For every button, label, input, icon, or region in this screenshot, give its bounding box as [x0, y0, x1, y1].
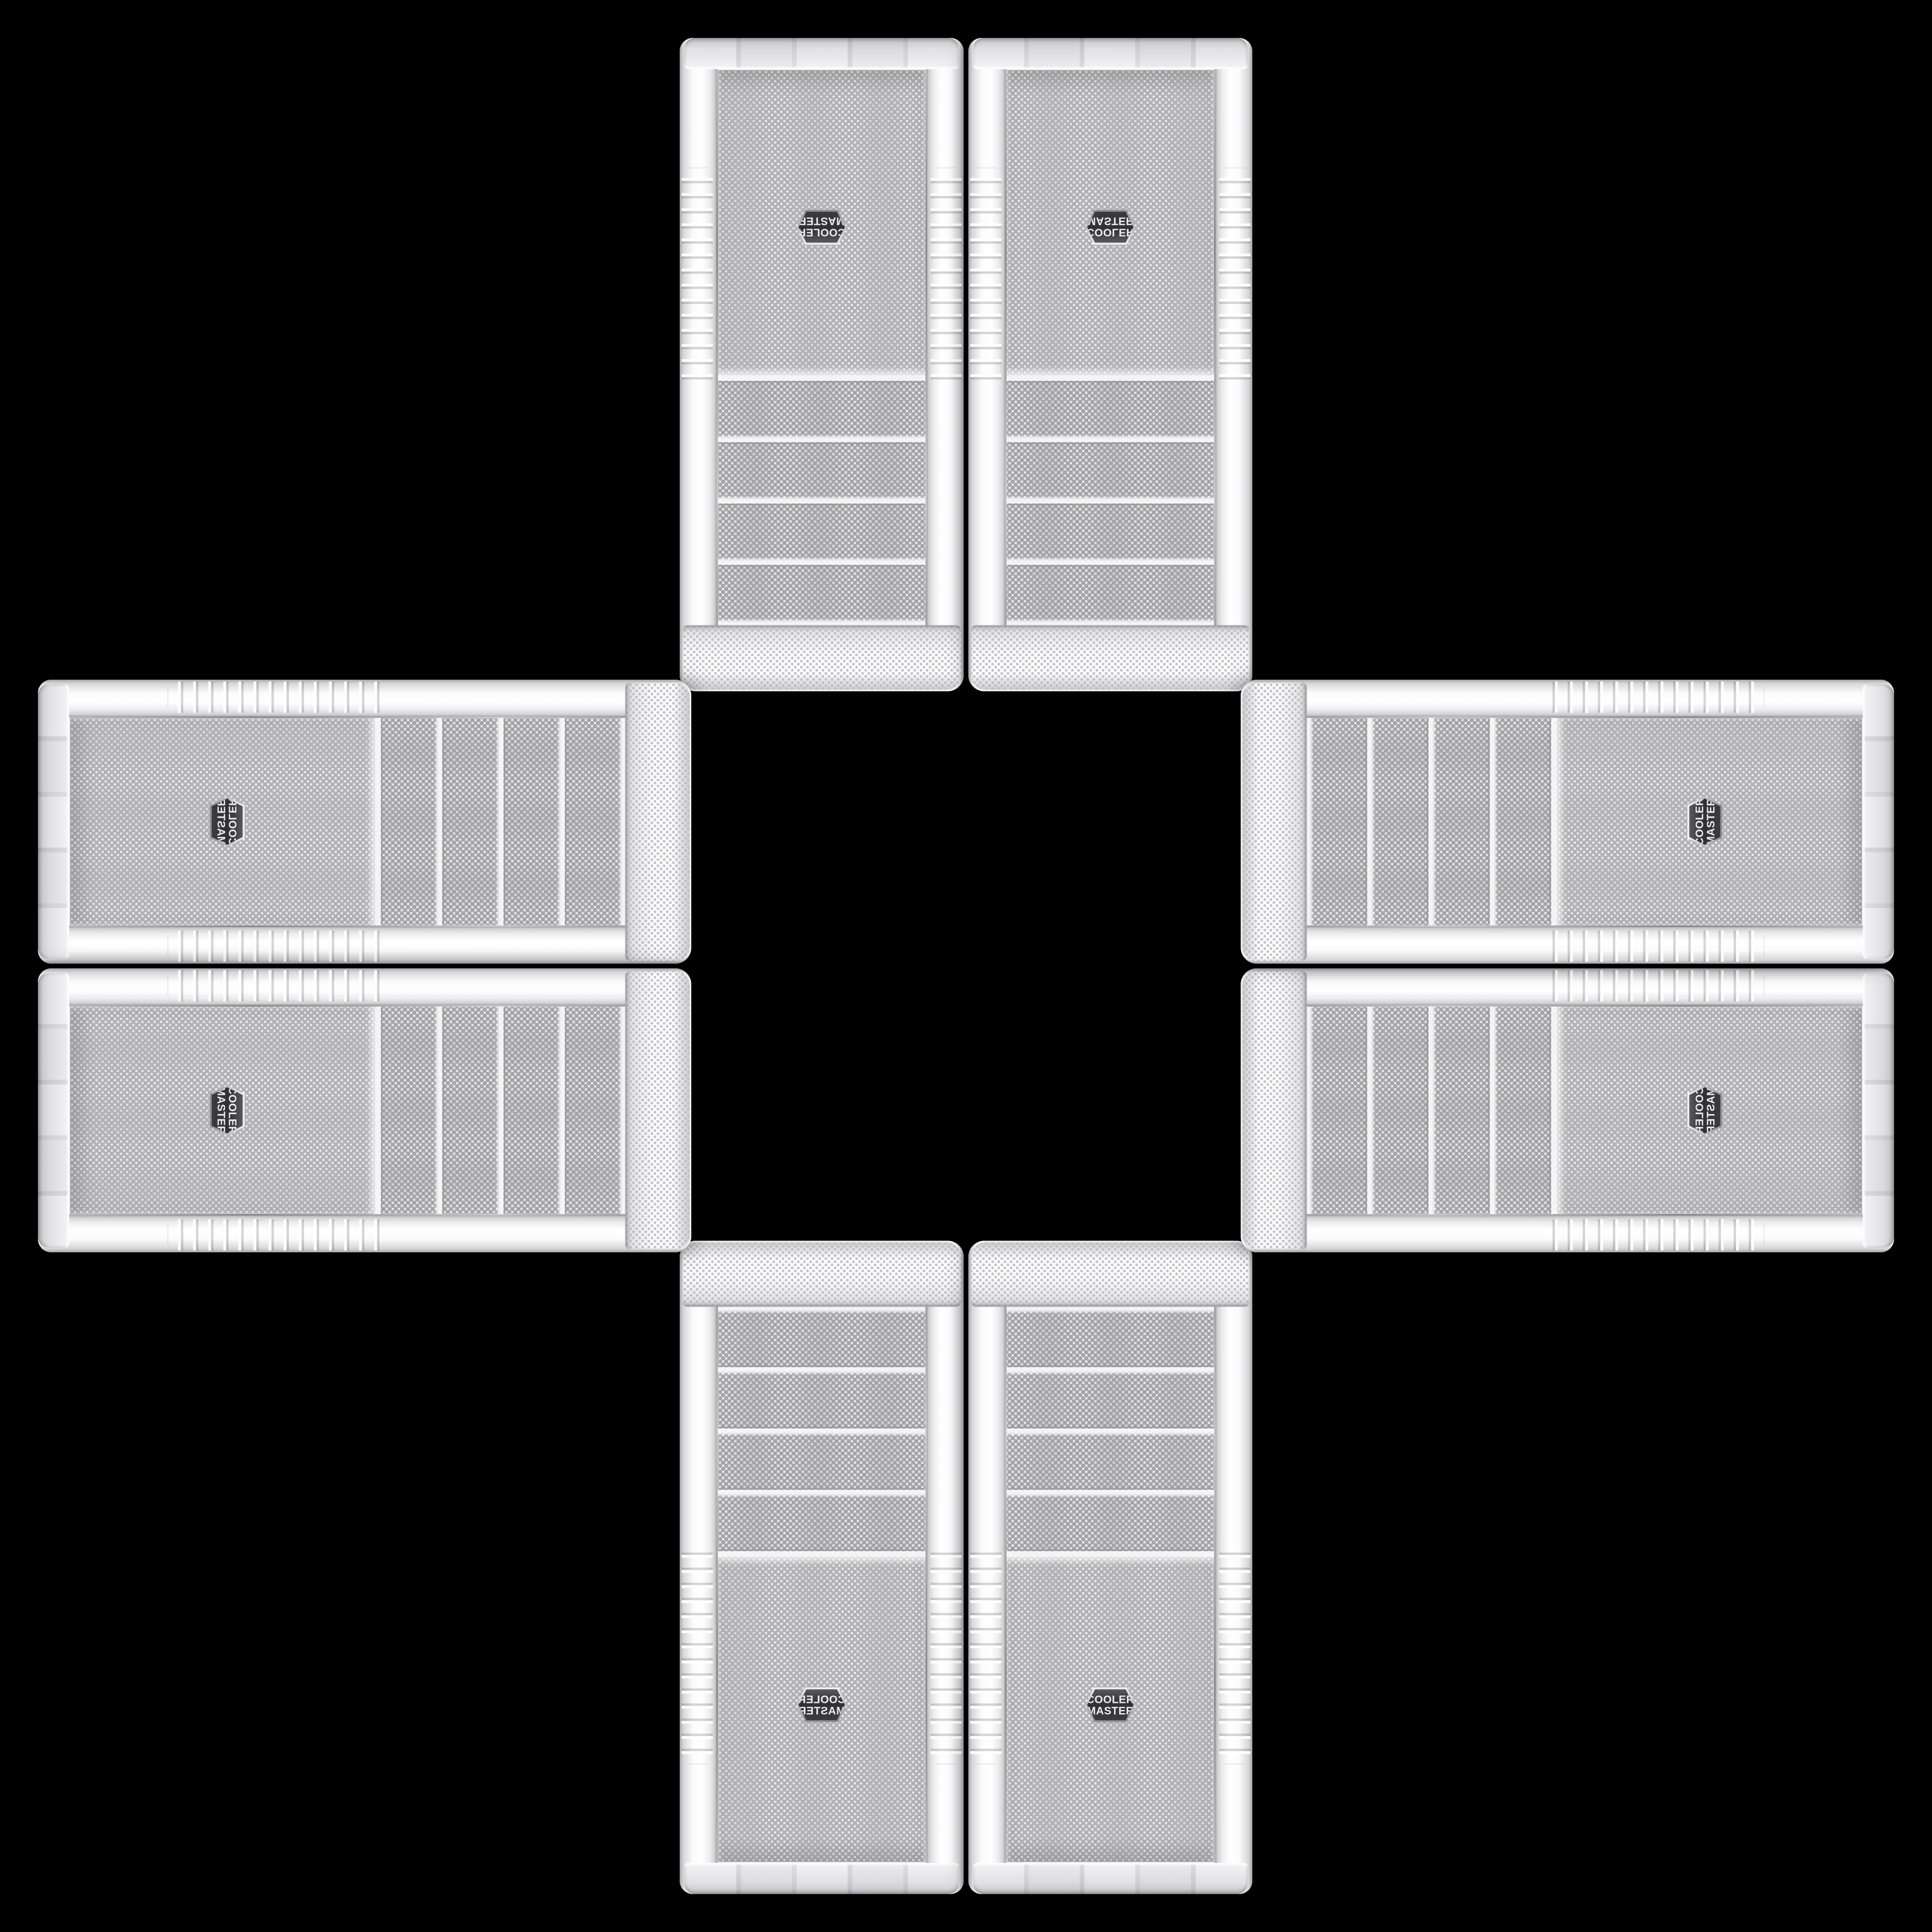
pair-right: COOLER MASTER — [1241, 680, 1894, 1252]
chrome-trim-left — [67, 925, 679, 927]
case-side-rail-right — [1215, 1241, 1252, 1894]
drive-bay-cover — [1494, 1007, 1551, 1214]
case-bottom-cap — [1863, 973, 1894, 1248]
case-top-cap — [625, 683, 691, 961]
fan-mesh-panel: COOLER MASTER — [718, 70, 925, 375]
cooler-master-logo-badge: COOLER MASTER — [1085, 210, 1135, 245]
fan-mesh-panel: COOLER MASTER — [70, 1007, 375, 1214]
drive-bay-cover — [504, 1007, 561, 1214]
badge-face: COOLER MASTER — [212, 1087, 243, 1133]
grip-ribs — [1543, 682, 1765, 713]
case-top-cap — [683, 625, 961, 691]
chrome-trim-left — [925, 67, 927, 679]
badge-text-line1: COOLER — [227, 1086, 239, 1134]
case-side-rail-right — [680, 1241, 717, 1894]
drive-bay-cover — [1007, 1432, 1214, 1490]
drive-bay-cover — [1494, 718, 1551, 925]
chrome-trim-right — [1214, 1253, 1216, 1866]
badge-text-line2: MASTER — [798, 216, 845, 227]
drive-bay-cover — [1007, 1310, 1214, 1367]
badge-text-line2: MASTER — [1087, 216, 1134, 227]
drive-bay-group — [718, 377, 925, 623]
case-bottom-cap — [684, 1863, 959, 1894]
badge-text-line2: MASTER — [1087, 1705, 1134, 1716]
case-side-rail-left — [968, 1241, 1006, 1894]
drive-bay-cover — [381, 1007, 439, 1214]
chrome-trim-right — [67, 1214, 679, 1216]
case-bottom-cap — [38, 973, 69, 1248]
drive-bay-cover — [718, 442, 925, 500]
chrome-trim-left — [925, 1253, 927, 1866]
drive-bay-cover — [718, 381, 925, 439]
case-left-top: COOLER MASTER — [38, 680, 691, 964]
badge-face: COOLER MASTER — [1087, 1689, 1133, 1720]
drive-bay-cover — [442, 1007, 500, 1214]
pair-bottom: COOLER MASTER — [680, 1241, 1252, 1894]
case-bottom-cap — [973, 38, 1248, 69]
fan-mesh-panel: COOLER MASTER — [1557, 1007, 1862, 1214]
case-bottom-cap — [973, 1863, 1248, 1894]
grip-ribs — [1219, 168, 1250, 390]
drive-bay-cover — [1432, 1007, 1490, 1214]
drive-bay-group — [1007, 377, 1214, 623]
badge-text-line1: COOLER — [1693, 798, 1705, 845]
case-side-rail-right — [38, 1215, 691, 1252]
case-right-top: COOLER MASTER — [1241, 680, 1894, 964]
case-side-rail-left — [38, 926, 691, 964]
cooler-master-logo-badge: COOLER MASTER — [797, 1687, 847, 1722]
drive-bay-cover — [1007, 1371, 1214, 1429]
case-top-cap — [1241, 971, 1307, 1249]
badge-text-line2: MASTER — [1705, 798, 1716, 845]
badge-face: COOLER MASTER — [1689, 799, 1720, 845]
case-side-rail-right — [38, 680, 691, 717]
chrome-trim-right — [1253, 1214, 1866, 1216]
drive-bay-group — [718, 1310, 925, 1555]
case-top-cap — [971, 1241, 1249, 1307]
case-bottom-cap — [1863, 684, 1894, 959]
case-side-rail-left — [926, 38, 964, 691]
cooler-master-logo-badge: COOLER MASTER — [1085, 1687, 1135, 1722]
drive-bay-cover — [565, 718, 623, 925]
pair-left: COOLER MASTER — [38, 680, 691, 1252]
fan-mesh-panel: COOLER MASTER — [1007, 1557, 1214, 1862]
grip-ribs — [1543, 931, 1765, 962]
case-top-cap — [971, 625, 1249, 691]
badge-face: COOLER MASTER — [799, 212, 845, 243]
case-bottom-left: COOLER MASTER — [680, 1241, 964, 1894]
drive-bay-cover — [718, 1310, 925, 1367]
drive-bay-cover — [718, 565, 925, 623]
badge-text-line1: COOLER — [798, 1693, 845, 1705]
grip-ribs — [1543, 970, 1765, 1001]
badge-text-line2: MASTER — [798, 1705, 845, 1716]
case-side-rail-right — [1241, 1215, 1894, 1252]
badge-text-line1: COOLER — [227, 798, 239, 845]
case-top-cap — [1241, 683, 1307, 961]
drive-bay-group — [1310, 718, 1555, 925]
case-side-rail-left — [1241, 926, 1894, 964]
case-top-cap — [683, 1241, 961, 1307]
grip-ribs — [931, 168, 962, 390]
product-collage-canvas: COOLER MASTER — [0, 0, 1932, 1932]
drive-bay-cover — [1310, 1007, 1367, 1214]
drive-bay-cover — [1310, 718, 1367, 925]
case-side-rail-right — [680, 38, 717, 691]
drive-bay-group — [1007, 1310, 1214, 1555]
chrome-trim-right — [1214, 67, 1216, 679]
badge-text-line1: COOLER — [1086, 227, 1134, 239]
drive-bay-group — [1310, 1007, 1555, 1214]
case-side-rail-left — [38, 968, 691, 1006]
grip-ribs — [682, 1543, 713, 1765]
drive-bay-cover — [1007, 381, 1214, 439]
case-side-rail-left — [926, 1241, 964, 1894]
drive-bay-group — [377, 718, 623, 925]
drive-bay-cover — [1007, 442, 1214, 500]
case-top-left: COOLER MASTER — [680, 38, 964, 691]
badge-face: COOLER MASTER — [212, 799, 243, 845]
drive-bay-cover — [1007, 504, 1214, 561]
drive-bay-cover — [1432, 718, 1490, 925]
drive-bay-cover — [504, 718, 561, 925]
fan-mesh-panel: COOLER MASTER — [1557, 718, 1862, 925]
drive-bay-cover — [381, 718, 439, 925]
fan-mesh-panel: COOLER MASTER — [1007, 70, 1214, 375]
badge-text-line2: MASTER — [1705, 1087, 1716, 1134]
drive-bay-cover — [565, 1007, 623, 1214]
badge-text-line1: COOLER — [798, 227, 845, 239]
fan-mesh-panel: COOLER MASTER — [718, 1557, 925, 1862]
drive-bay-cover — [718, 1371, 925, 1429]
badge-text-line2: MASTER — [216, 1087, 227, 1134]
cooler-master-logo-badge: COOLER MASTER — [1687, 797, 1722, 847]
badge-text-line1: COOLER — [1086, 1693, 1134, 1705]
case-top-cap — [625, 971, 691, 1249]
grip-ribs — [970, 168, 1001, 390]
drive-bay-cover — [718, 504, 925, 561]
case-side-rail-right — [1241, 680, 1894, 717]
drive-bay-cover — [1007, 565, 1214, 623]
grip-ribs — [168, 1219, 390, 1250]
cooler-master-logo-badge: COOLER MASTER — [210, 1085, 245, 1135]
cooler-master-logo-badge: COOLER MASTER — [797, 210, 847, 245]
badge-text-line2: MASTER — [216, 798, 227, 845]
grip-ribs — [931, 1543, 962, 1765]
case-right-bottom: COOLER MASTER — [1241, 968, 1894, 1252]
case-side-rail-right — [1215, 38, 1252, 691]
grip-ribs — [168, 931, 390, 962]
badge-face: COOLER MASTER — [1689, 1087, 1720, 1133]
drive-bay-group — [377, 1007, 623, 1214]
drive-bay-cover — [1371, 1007, 1429, 1214]
case-side-rail-left — [968, 38, 1006, 691]
grip-ribs — [1219, 1543, 1250, 1765]
case-bottom-cap — [38, 684, 69, 959]
case-bottom-cap — [684, 38, 959, 69]
grip-ribs — [168, 970, 390, 1001]
chrome-trim-left — [1253, 925, 1866, 927]
grip-ribs — [682, 168, 713, 390]
case-left-bottom: COOLER MASTER — [38, 968, 691, 1252]
case-top-right: COOLER MASTER — [968, 38, 1252, 691]
drive-bay-cover — [442, 718, 500, 925]
drive-bay-cover — [1371, 718, 1429, 925]
badge-text-line1: COOLER — [1693, 1086, 1705, 1134]
drive-bay-cover — [1007, 1494, 1214, 1551]
drive-bay-cover — [718, 1494, 925, 1551]
grip-ribs — [970, 1543, 1001, 1765]
drive-bay-cover — [718, 1432, 925, 1490]
cooler-master-logo-badge: COOLER MASTER — [210, 797, 245, 847]
case-bottom-right: COOLER MASTER — [968, 1241, 1252, 1894]
cooler-master-logo-badge: COOLER MASTER — [1687, 1085, 1722, 1135]
badge-face: COOLER MASTER — [1087, 212, 1133, 243]
grip-ribs — [1543, 1219, 1765, 1250]
fan-mesh-panel: COOLER MASTER — [70, 718, 375, 925]
grip-ribs — [168, 682, 390, 713]
case-side-rail-left — [1241, 968, 1894, 1006]
pair-top: COOLER MASTER — [680, 38, 1252, 691]
badge-face: COOLER MASTER — [799, 1689, 845, 1720]
